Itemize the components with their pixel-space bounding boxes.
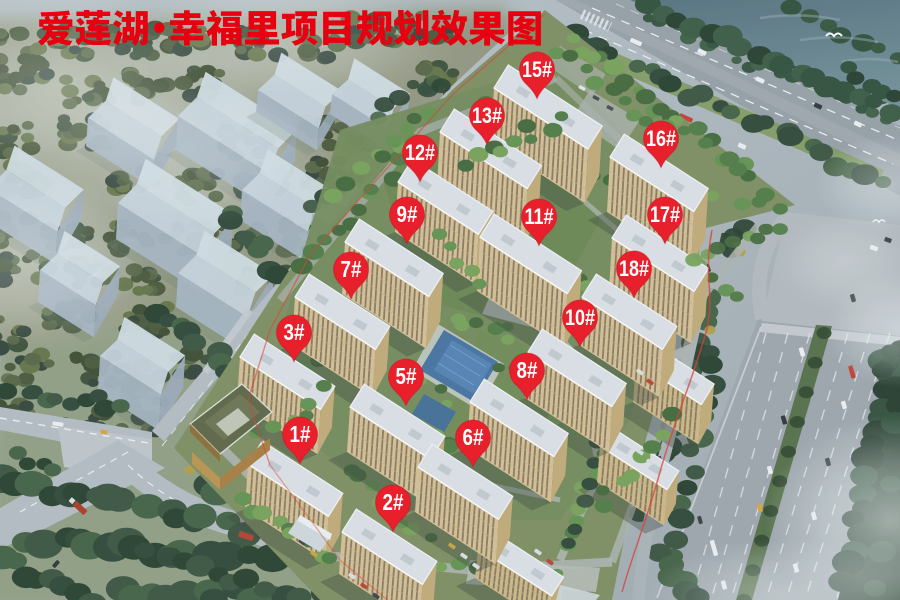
svg-text:11#: 11# xyxy=(524,205,553,229)
svg-text:16#: 16# xyxy=(646,127,676,151)
svg-text:5#: 5# xyxy=(396,363,417,390)
svg-text:2#: 2# xyxy=(383,489,404,516)
svg-text:7#: 7# xyxy=(341,256,362,283)
svg-text:12#: 12# xyxy=(405,141,435,165)
svg-text:13#: 13# xyxy=(472,104,502,128)
svg-text:6#: 6# xyxy=(463,424,484,451)
svg-text:8#: 8# xyxy=(517,357,538,384)
svg-text:18#: 18# xyxy=(619,257,649,281)
svg-text:15#: 15# xyxy=(522,58,552,82)
svg-text:17#: 17# xyxy=(650,203,680,227)
svg-text:9#: 9# xyxy=(397,201,418,228)
svg-text:1#: 1# xyxy=(290,421,311,448)
svg-text:10#: 10# xyxy=(565,306,595,330)
svg-text:3#: 3# xyxy=(284,319,305,346)
